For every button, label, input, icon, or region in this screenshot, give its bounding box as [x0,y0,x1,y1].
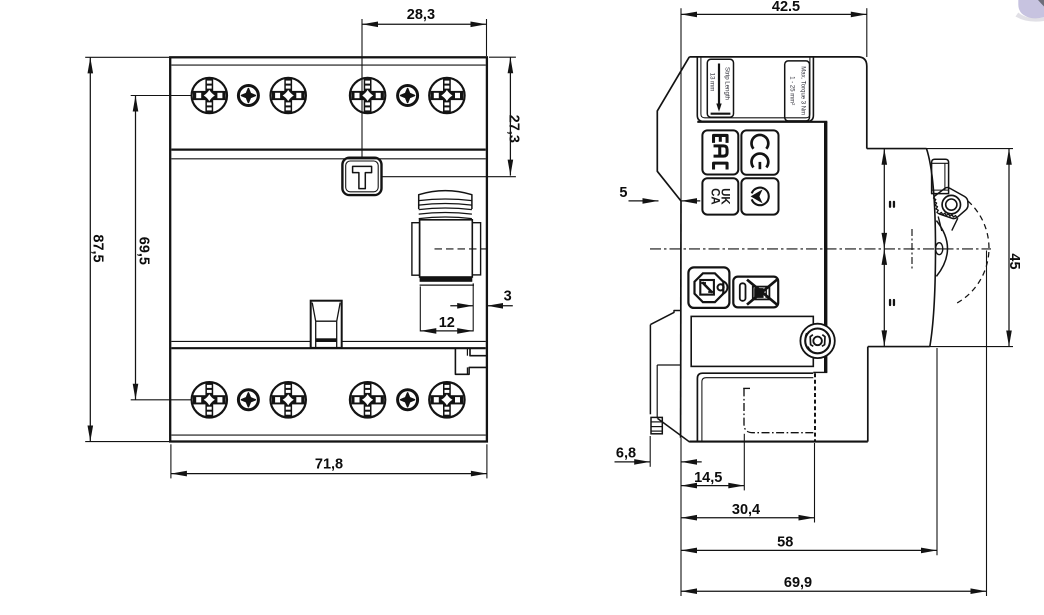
svg-text:69,5: 69,5 [135,237,151,265]
svg-text:45: 45 [1006,253,1022,269]
svg-text:CA: CA [709,188,721,205]
svg-text:1 - 25 mm²: 1 - 25 mm² [789,76,795,105]
svg-text:30,4: 30,4 [732,502,760,518]
svg-text:Strip Length: Strip Length [723,67,730,100]
svg-text:42.5: 42.5 [772,0,800,15]
svg-text:71,8: 71,8 [315,457,343,473]
svg-text:14,5: 14,5 [694,470,722,486]
svg-text:Max. Torque 3 Nm: Max. Torque 3 Nm [799,66,805,115]
svg-text:28,3: 28,3 [407,7,435,23]
svg-text:27,3: 27,3 [506,115,522,143]
svg-text:6,8: 6,8 [616,446,636,462]
svg-text:3: 3 [504,289,512,305]
svg-text:58: 58 [777,535,793,551]
svg-text:5: 5 [619,185,627,201]
svg-text:69,9: 69,9 [784,575,812,591]
svg-text:87,5: 87,5 [90,234,106,262]
svg-text:12: 12 [439,315,455,331]
svg-text:13 mm: 13 mm [708,73,715,92]
